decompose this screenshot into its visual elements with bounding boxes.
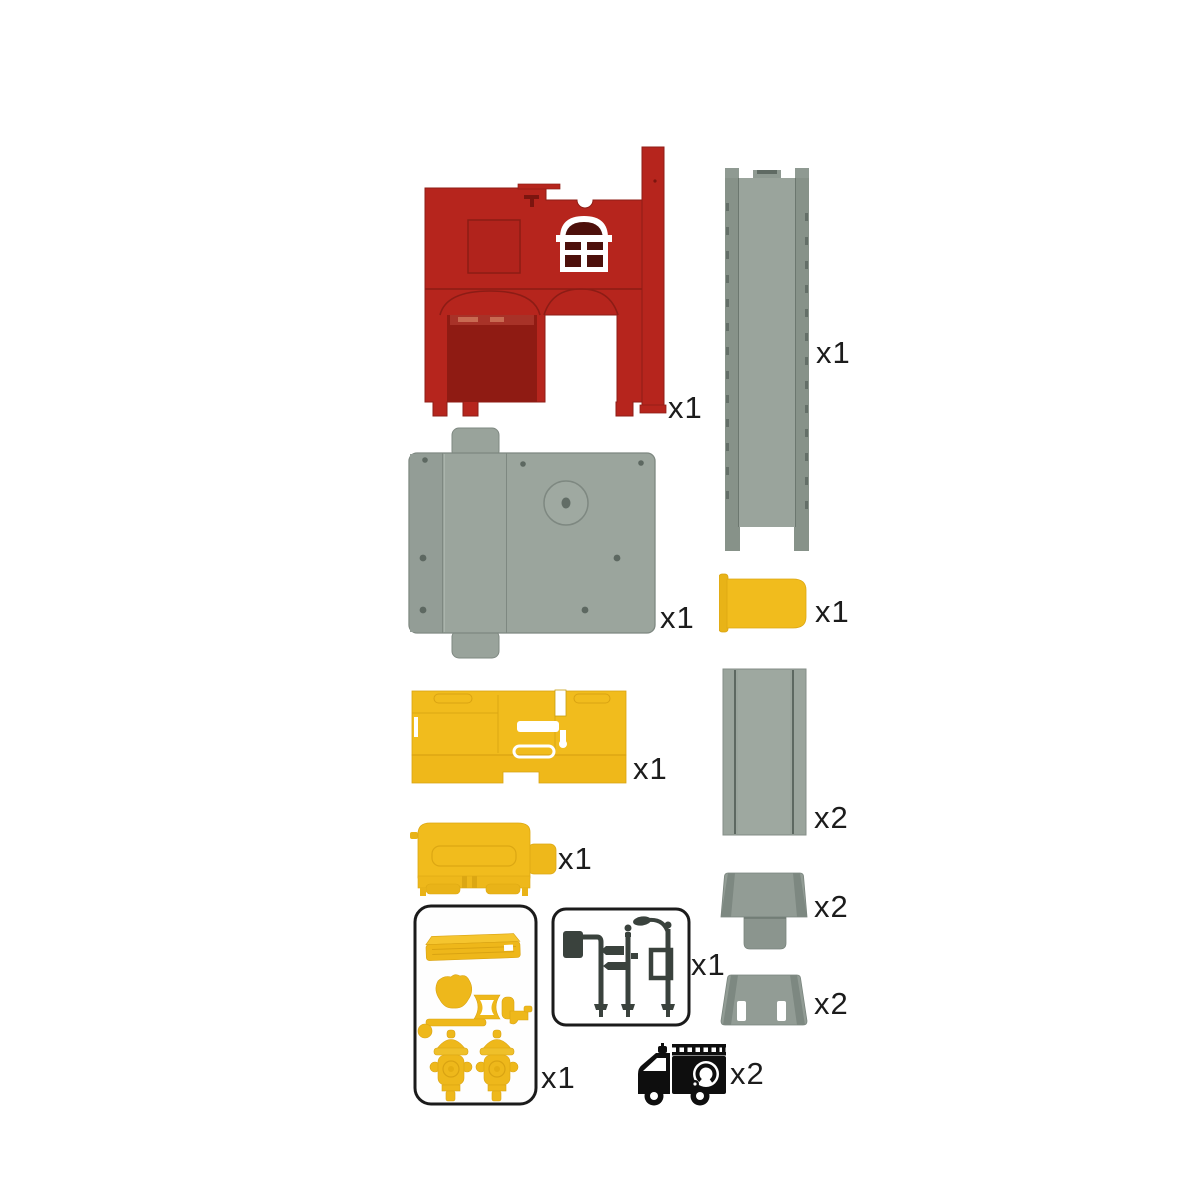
small-door-panel-icon: [719, 571, 814, 636]
qty-label: x1: [660, 602, 695, 633]
ramp-end-with-tab-icon: [718, 870, 810, 958]
part-accessory-sprue-set: [412, 903, 540, 1113]
fire-truck-icon: [630, 1038, 728, 1110]
elevated-track-column-icon: [721, 163, 813, 555]
base-plate-icon: [403, 423, 663, 663]
part-straight-road-section: [722, 668, 807, 841]
qty-label: x2: [814, 988, 849, 1019]
vehicle-body-block-icon: [410, 818, 560, 898]
parts-list-sheet: x1: [0, 0, 1200, 1200]
straight-road-section-icon: [722, 668, 807, 836]
qty-label: x1: [633, 753, 668, 784]
street-lamp-and-sign-set-icon: [550, 906, 692, 1028]
qty-label: x2: [814, 891, 849, 922]
part-street-lamp-and-sign-set: [550, 906, 692, 1033]
qty-label: x2: [814, 802, 849, 833]
garage-wall-panel-icon: [406, 683, 634, 791]
ramp-end-with-slots-icon: [719, 973, 809, 1031]
part-elevated-track-column: [721, 163, 813, 560]
qty-label: x1: [815, 596, 850, 627]
part-base-plate: [403, 423, 663, 668]
part-small-door-panel: [719, 571, 814, 641]
part-fire-station-front-wall: [420, 143, 670, 433]
fire-station-front-wall-icon: [420, 143, 670, 428]
qty-label: x1: [668, 392, 703, 423]
qty-label: x1: [541, 1062, 576, 1093]
part-garage-wall-panel: [406, 683, 634, 796]
part-fire-truck: [630, 1038, 728, 1115]
part-ramp-end-with-tab: [718, 870, 810, 963]
qty-label: x1: [816, 337, 851, 368]
accessory-sprue-set-icon: [412, 903, 540, 1108]
qty-label: x2: [730, 1058, 765, 1089]
part-vehicle-body-block: [410, 818, 560, 903]
qty-label: x1: [691, 949, 726, 980]
part-ramp-end-with-slots: [719, 973, 809, 1036]
qty-label: x1: [558, 843, 593, 874]
